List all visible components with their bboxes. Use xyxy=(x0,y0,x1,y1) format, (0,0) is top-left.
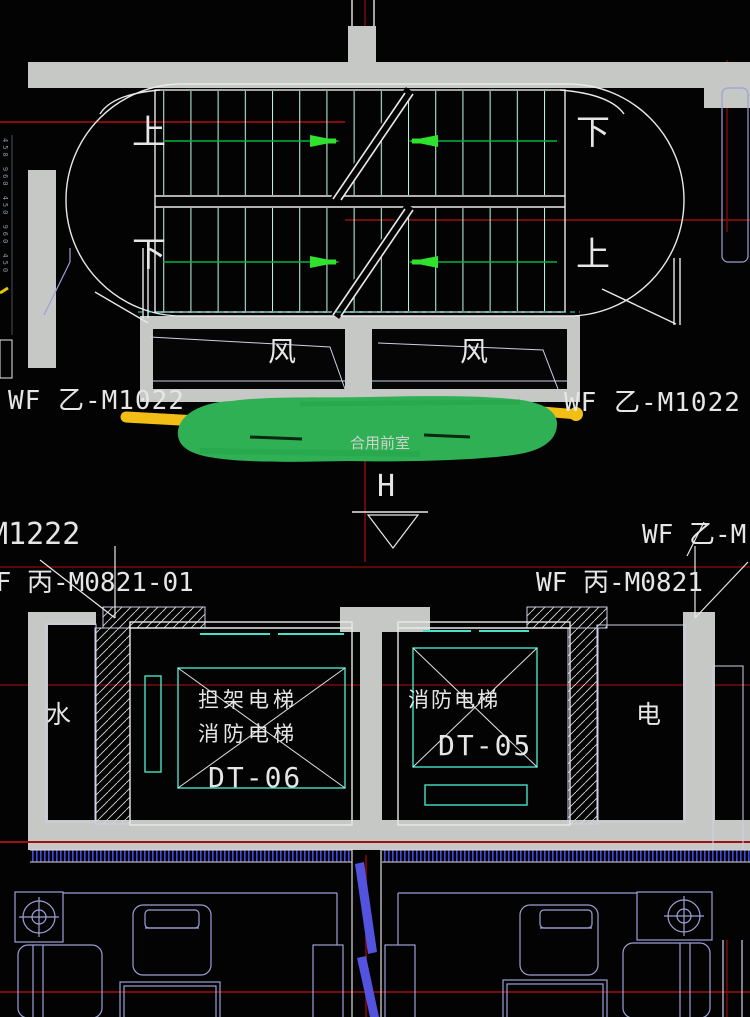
dt06-tag: DT-06 xyxy=(208,764,302,792)
electric-shaft-label: 电 xyxy=(636,702,661,727)
dt05-tag: DT-05 xyxy=(438,732,532,760)
door-tag-top-left: WF 乙-M1022 xyxy=(8,388,185,414)
bottom-right-wall-lines xyxy=(723,940,742,1017)
door-tag-mid-right: WF 乙-M xyxy=(642,522,746,548)
door-tag-mid-left: M1222 xyxy=(0,520,80,550)
dt06-label-line2: 消防电梯 xyxy=(198,724,298,745)
vent-left-label: 风 xyxy=(268,338,296,366)
stair-up-right-label: 上 xyxy=(576,238,610,272)
insulation-strip xyxy=(30,850,750,862)
elevator-rooms xyxy=(46,622,743,850)
vent-right-label: 风 xyxy=(460,338,488,366)
elevation-marker-icon xyxy=(352,512,428,548)
elevation-letter: H xyxy=(377,472,395,502)
stair-down-right-label: 下 xyxy=(576,116,610,150)
left-edge-marks xyxy=(0,288,12,378)
cad-floorplan-canvas: 450 960 450 960 450 上 下 下 上 风 风 WF 乙-M10… xyxy=(0,0,750,1017)
dt06-label-line1: 担架电梯 xyxy=(198,690,298,711)
door-tag-lower-left: WF 丙-M0821-01 xyxy=(0,570,194,596)
stair-down-left-label: 下 xyxy=(132,238,166,272)
door-tag-top-right: WF 乙-M1022 xyxy=(564,390,741,416)
dt05-label-line1: 消防电梯 xyxy=(408,690,500,711)
water-shaft-label: 水 xyxy=(46,702,71,727)
door-tag-lower-right: WF 丙-M0821 xyxy=(536,570,703,596)
lobby-label: 合用前室 xyxy=(350,436,410,451)
left-dimension-text: 450 960 450 960 450 xyxy=(1,138,8,275)
stair-up-left-label: 上 xyxy=(132,116,166,150)
floorplan-linework xyxy=(0,0,750,1017)
hatched-walls xyxy=(95,607,607,824)
